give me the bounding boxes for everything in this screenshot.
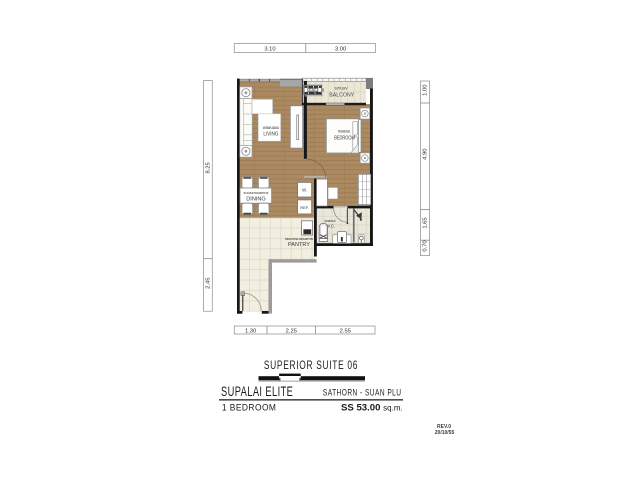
svg-text:20/10/55: 20/10/55 <box>435 430 455 436</box>
svg-text:sziuuv: sziuuv <box>335 86 349 91</box>
svg-text:suuszmuamns: suuszmuamns <box>244 190 269 195</box>
svg-text:SS 53.00 sq.m.: SS 53.00 sq.m. <box>341 403 403 414</box>
svg-text:8.25: 8.25 <box>206 162 212 173</box>
svg-text:1 BEDROOM: 1 BEDROOM <box>222 403 277 414</box>
svg-text:wawuaau: wawuaau <box>263 125 279 130</box>
svg-text:SATHORN - SUAN PLU: SATHORN - SUAN PLU <box>323 387 402 397</box>
svg-text:nauau: nauau <box>338 128 351 133</box>
svg-text:1.65: 1.65 <box>423 217 429 228</box>
svg-text:W.: W. <box>302 188 307 193</box>
svg-text:1.00: 1.00 <box>423 85 429 96</box>
svg-text:SUPALAI ELITE: SUPALAI ELITE <box>221 384 293 399</box>
svg-text:iawuwuuaams: iawuwuuaams <box>285 236 313 241</box>
svg-text:PANTRY: PANTRY <box>288 242 311 248</box>
svg-text:2.45: 2.45 <box>206 278 212 289</box>
svg-text:LIVING: LIVING <box>263 132 278 138</box>
svg-text:3.10: 3.10 <box>264 47 275 53</box>
svg-text:REF.: REF. <box>300 205 309 210</box>
svg-text:DINING: DINING <box>246 197 266 203</box>
svg-text:3.00: 3.00 <box>335 47 346 53</box>
svg-text:BEDROOM: BEDROOM <box>334 135 355 141</box>
svg-text:2.25: 2.25 <box>286 328 297 334</box>
svg-text:4.90: 4.90 <box>423 149 429 160</box>
svg-text:SUPERIOR SUITE 06: SUPERIOR SUITE 06 <box>264 358 358 372</box>
svg-text:2.55: 2.55 <box>340 328 351 334</box>
svg-text:1.30: 1.30 <box>245 328 256 334</box>
svg-text:0.70: 0.70 <box>423 240 429 251</box>
svg-text:EAC: EAC <box>309 88 317 92</box>
svg-text:BALCONY: BALCONY <box>329 92 355 98</box>
svg-text:wavui: wavui <box>325 218 336 223</box>
